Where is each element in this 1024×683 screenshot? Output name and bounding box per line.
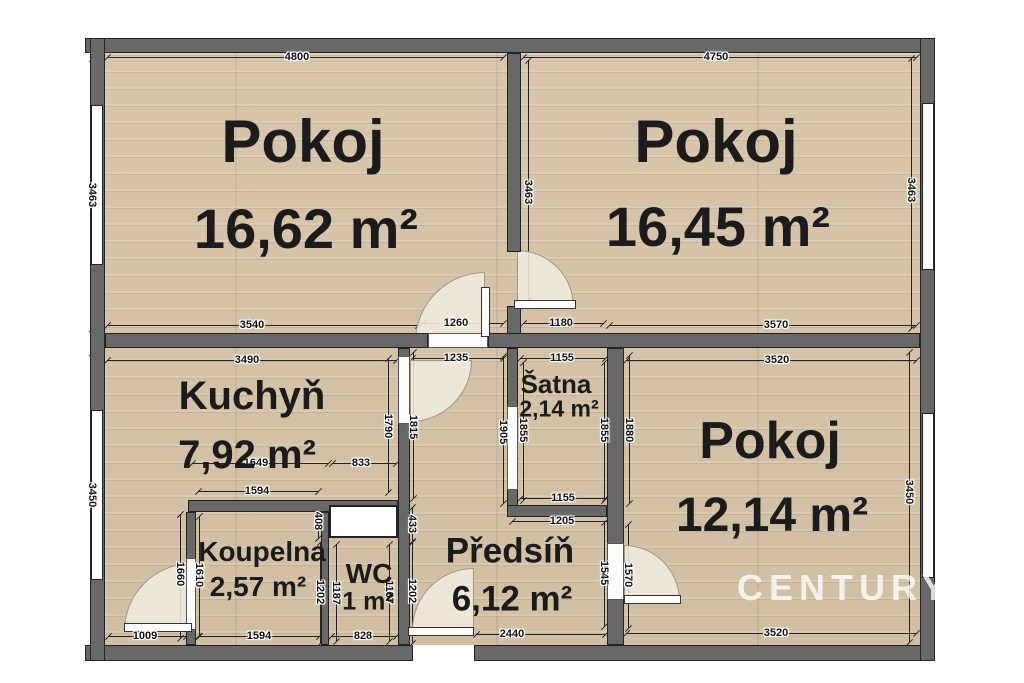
dimension-label: 1205 bbox=[550, 515, 574, 527]
watermark: CENTURY 21 bbox=[737, 567, 1019, 609]
dimension-label: 433 bbox=[406, 515, 418, 533]
room-area-predsin: 6,12 m² bbox=[452, 582, 573, 617]
dimension-label: 1202 bbox=[314, 580, 326, 604]
room-name-pokoj-2: Pokoj bbox=[634, 112, 797, 172]
dimension-label: 1815 bbox=[407, 415, 419, 439]
dimension-label: 3490 bbox=[235, 354, 259, 366]
dimension-label: 1187 bbox=[330, 581, 342, 605]
room-area-pokoj-1: 16,62 m² bbox=[194, 201, 418, 257]
dimension-label: 1594 bbox=[245, 485, 269, 497]
dimension-label: 4800 bbox=[285, 51, 309, 63]
dimension-label: 3463 bbox=[86, 183, 98, 207]
dimension-label: 1660 bbox=[174, 562, 186, 586]
dimension-label: 1235 bbox=[444, 352, 468, 364]
dimension-label: 3540 bbox=[240, 319, 264, 331]
dimension-label: 1202 bbox=[406, 579, 418, 603]
dimension-label: 408 bbox=[312, 512, 324, 530]
dimension-label: 1570 bbox=[622, 563, 634, 587]
floor-plan-canvas: 4800475034633463346335401260118035703490… bbox=[0, 0, 1024, 683]
dimension-label: 1155 bbox=[551, 492, 575, 504]
dimension-label: 3463 bbox=[905, 178, 917, 202]
room-name-kuchyn: Kuchyň bbox=[179, 376, 326, 416]
room-area-kuchyn: 7,92 m² bbox=[178, 435, 316, 475]
room-name-satna: Šatna bbox=[521, 371, 592, 397]
dimension-label: 1594 bbox=[247, 630, 271, 642]
room-name-pokoj-1: Pokoj bbox=[221, 112, 384, 172]
dimension-label: 3450 bbox=[86, 483, 98, 507]
room-name-koupelna: Koupelna bbox=[198, 538, 326, 566]
dimension-label: 3450 bbox=[903, 480, 915, 504]
dimension-label: 4750 bbox=[704, 51, 728, 63]
dimension-label: 828 bbox=[354, 630, 372, 642]
room-name-pokoj-3: Pokoj bbox=[699, 415, 841, 467]
room-name-wc: WC bbox=[346, 560, 393, 588]
dimension-label: 1009 bbox=[133, 630, 157, 642]
dimension-label: 1790 bbox=[382, 414, 394, 438]
room-area-wc: 1 m² bbox=[342, 590, 393, 615]
dimension-label: 1545 bbox=[598, 561, 610, 585]
dimension-label: 1155 bbox=[550, 352, 574, 364]
dimension-label: 3520 bbox=[765, 354, 789, 366]
room-area-pokoj-3: 12,14 m² bbox=[676, 492, 868, 540]
room-area-satna: 2,14 m² bbox=[519, 398, 598, 421]
dimension-label: 1880 bbox=[623, 418, 635, 442]
dimension-label: 3570 bbox=[764, 319, 788, 331]
dimension-label: 1905 bbox=[497, 420, 509, 444]
room-area-koupelna: 2,57 m² bbox=[210, 573, 307, 601]
dimension-label: 1260 bbox=[444, 317, 468, 329]
dimension-label: 833 bbox=[352, 457, 370, 469]
dimension-label: 3520 bbox=[764, 627, 788, 639]
dimension-label: 2440 bbox=[500, 628, 524, 640]
room-name-predsin: Předsíň bbox=[446, 534, 574, 569]
dimension-label: 3463 bbox=[522, 180, 534, 204]
dimension-label: 1180 bbox=[549, 317, 573, 329]
dimension-label: 1855 bbox=[598, 418, 610, 442]
room-area-pokoj-2: 16,45 m² bbox=[606, 199, 830, 255]
